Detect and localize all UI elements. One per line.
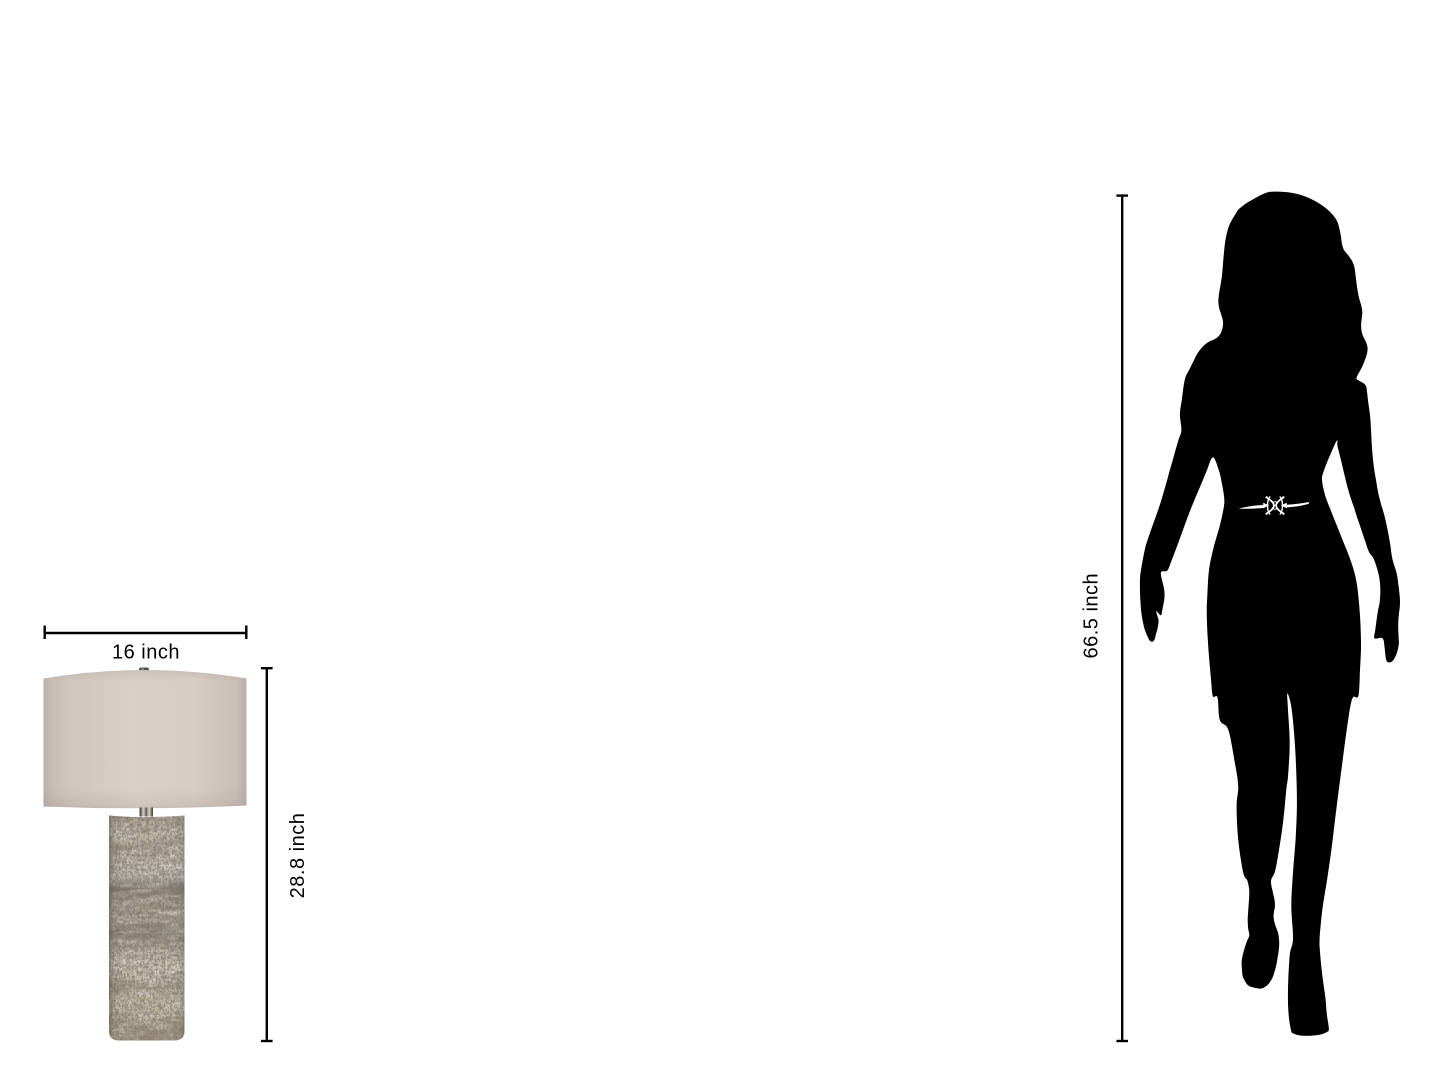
svg-text:16 inch: 16 inch [112,641,180,663]
svg-text:66.5 inch: 66.5 inch [1081,573,1103,659]
svg-text:28.8 inch: 28.8 inch [287,813,309,899]
